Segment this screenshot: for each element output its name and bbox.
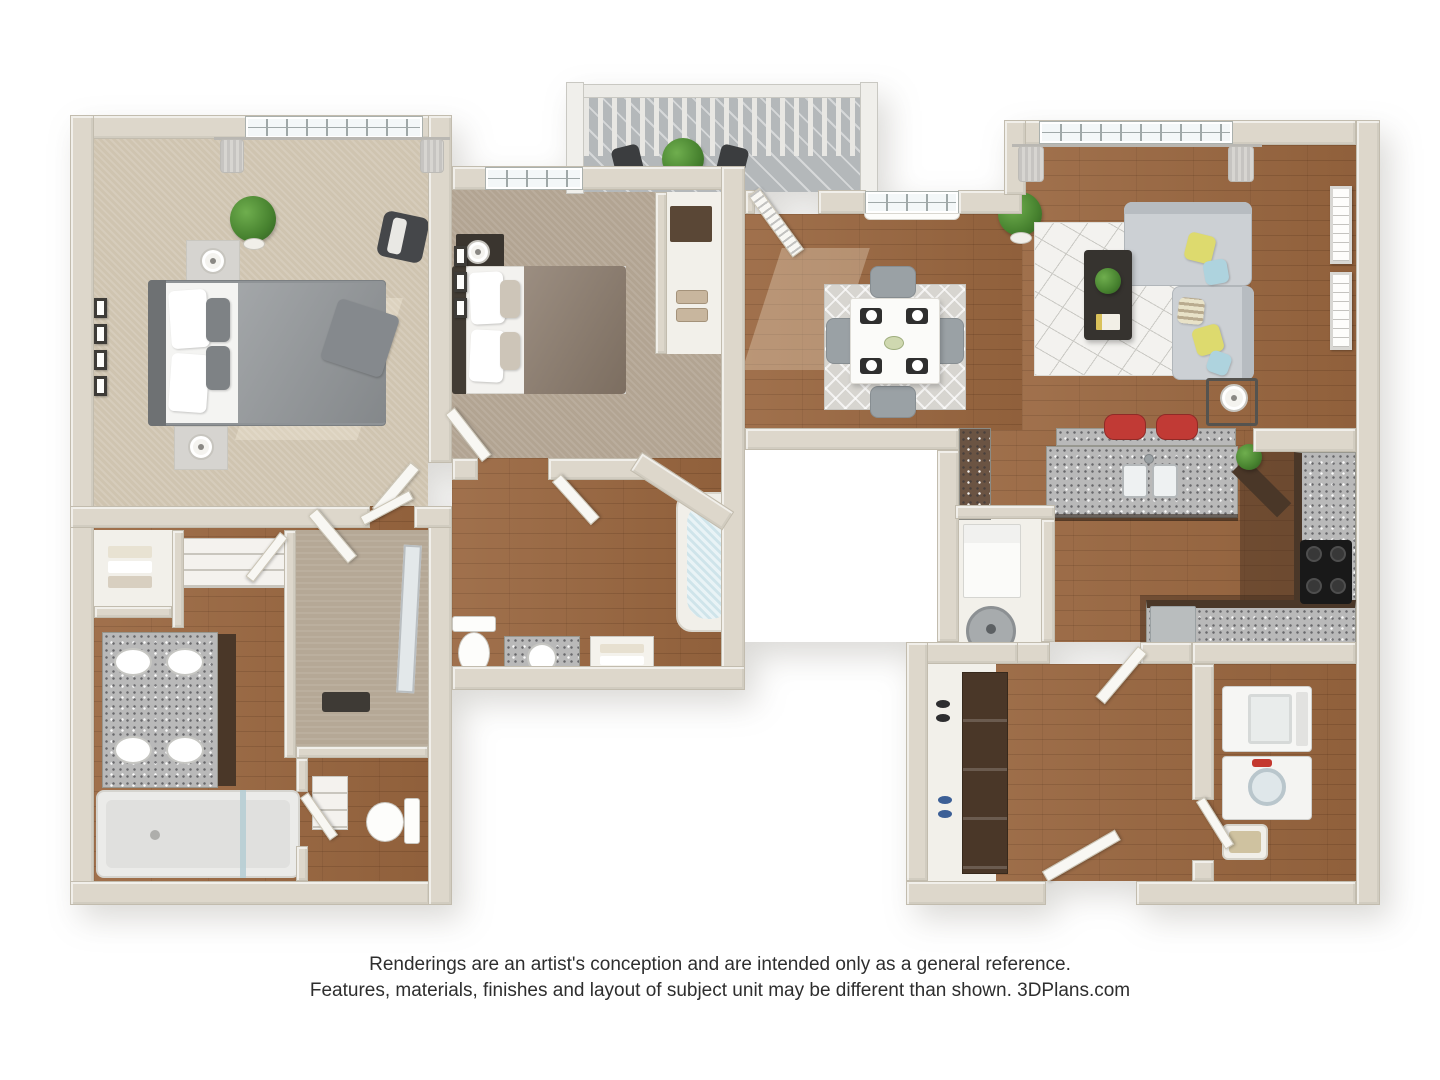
bedroom2-closet-basket-2 — [676, 308, 708, 322]
bedroom1-wall-art-2 — [94, 324, 107, 344]
dining-window — [866, 192, 958, 213]
wall-linen-niche-bottom — [94, 606, 172, 618]
balcony-railing-top-bar — [570, 84, 876, 98]
bedroom1-lamp-top — [200, 248, 226, 274]
floor-lamp — [1220, 384, 1248, 412]
bedroom1-curtain-left — [220, 139, 244, 173]
washer-lid — [1248, 694, 1292, 744]
master-toilet-bowl — [366, 802, 404, 842]
bedroom1-plant-pot — [243, 238, 265, 250]
bedroom2-accent-pillow-2 — [500, 332, 520, 370]
cooktop-burner-3 — [1306, 578, 1322, 594]
bedroom1-curtain-right — [420, 139, 444, 173]
wall-utility-right — [1041, 519, 1055, 642]
bedroom1-pillow-1 — [168, 289, 210, 350]
wall-bedroom2-bottom-left — [452, 458, 478, 480]
bedroom2-wall-art-3 — [454, 298, 467, 318]
wall-entry-bottom-left — [906, 881, 1046, 905]
hall-corner-plant-pot — [1010, 232, 1032, 244]
closet-shoes-dark-2 — [936, 714, 950, 722]
kitchen-sink-right — [1152, 464, 1178, 498]
living-wall-art-1 — [1330, 186, 1352, 264]
balcony-post-right — [860, 82, 878, 194]
bedroom1-curtain-rod — [214, 137, 450, 140]
master-vanity-sink-2 — [166, 648, 204, 676]
bedroom1-wall-art-1 — [94, 298, 107, 318]
bedroom2-accent-pillow-1 — [500, 280, 520, 318]
closet-shoes-blue-2 — [938, 810, 952, 818]
dining-chair-top — [870, 266, 916, 298]
coffee-table-book — [1096, 314, 1120, 330]
dining-centerpiece — [884, 336, 904, 350]
dryer-red-button — [1252, 759, 1272, 767]
wall-hall-top-b — [818, 190, 866, 214]
wall-notch-top — [745, 428, 959, 450]
master-shower-drain — [150, 830, 160, 840]
disclaimer-line-1: Renderings are an artist's conception an… — [0, 952, 1440, 978]
floorplan-rendering-page: Renderings are an artist's conception an… — [0, 0, 1440, 1080]
dining-plate-1 — [866, 310, 877, 321]
bedroom1-window — [246, 117, 422, 138]
wall-entry-top-right — [1140, 642, 1192, 664]
disclaimer-line-2: Features, materials, finishes and layout… — [0, 978, 1440, 1004]
dining-chair-bottom — [870, 386, 916, 418]
master-shower-tray — [106, 800, 290, 868]
sofa-pillow-striped — [1177, 297, 1206, 326]
bedroom1-plant — [230, 196, 276, 242]
bedroom1-lamp-bottom — [188, 434, 214, 460]
wall-bedroom1-bottom-stub — [414, 506, 452, 528]
refrigerator — [963, 524, 1021, 598]
master-vanity-sink-3 — [114, 736, 152, 764]
wall-right-outer — [1356, 120, 1380, 905]
living-window — [1040, 122, 1232, 143]
cooktop-burner-2 — [1330, 546, 1346, 562]
dining-plate-4 — [912, 360, 923, 371]
kitchen-sink-left — [1122, 464, 1148, 498]
dining-window-valance — [864, 213, 960, 220]
bathroom-towel-1 — [600, 644, 644, 653]
bedroom2-closet-basket-1 — [676, 290, 708, 304]
apartment-3d-floorplan — [0, 0, 1440, 1080]
master-vanity-cabinet-edge — [218, 634, 236, 786]
coffee-table-plant — [1095, 268, 1121, 294]
cooktop-burner-1 — [1306, 546, 1322, 562]
bedroom1-wall-art-3 — [94, 350, 107, 370]
wall-walkin-closet-bottom — [296, 746, 428, 758]
bedroom2-wall-art-1 — [454, 246, 467, 266]
dining-plate-2 — [912, 310, 923, 321]
sofa-chaise-back — [1124, 202, 1252, 214]
living-curtain-right — [1228, 146, 1254, 182]
wall-bedroom2-closet-left — [655, 192, 667, 354]
master-vanity-sink-4 — [166, 736, 204, 764]
wall-laundry-left-upper — [1192, 664, 1214, 800]
linen-towel-2 — [108, 561, 152, 573]
bar-stool-2 — [1156, 414, 1198, 440]
water-heater-valve — [986, 624, 996, 634]
wall-center-right — [721, 166, 745, 690]
bedroom1-accent-pillow-1 — [206, 298, 230, 342]
kitchen-bar-backsplash — [1056, 428, 1236, 446]
bedroom1-accent-pillow-2 — [206, 346, 230, 390]
cooktop-burner-4 — [1330, 578, 1346, 594]
wall-bathroom-bottom — [452, 666, 745, 690]
wall-closet-divider — [284, 530, 296, 758]
bedroom2-lamp — [466, 240, 490, 264]
bedroom2-duvet — [524, 266, 626, 394]
kitchen-faucet — [1144, 454, 1154, 464]
linen-towel-3 — [108, 576, 152, 588]
wall-leftwing-bottom — [70, 881, 430, 905]
sofa-body-back — [1242, 286, 1254, 380]
entry-closet-doors — [962, 672, 1008, 874]
wall-laundry-left-lower — [1192, 860, 1214, 881]
living-curtain-left — [1018, 146, 1044, 182]
notch-exterior-cutout — [745, 450, 937, 642]
master-shower-glass — [240, 790, 246, 878]
wall-living-kitchen-stub — [1253, 428, 1356, 452]
living-wall-art-2 — [1330, 272, 1352, 350]
wall-leftwing-right-lower — [428, 518, 452, 905]
master-vanity-sink-1 — [114, 648, 152, 676]
dining-plate-3 — [866, 360, 877, 371]
bedroom1-pillow-2 — [168, 353, 210, 414]
disclaimer-text: Renderings are an artist's conception an… — [0, 952, 1440, 1004]
wall-notch-right — [937, 450, 959, 642]
dryer-dial — [1248, 768, 1286, 806]
laundry-basket-contents — [1229, 831, 1261, 853]
bedroom2-closet-dresser — [670, 206, 712, 242]
living-curtain-rod — [1012, 144, 1262, 147]
wall-utility-top — [955, 505, 1055, 519]
bedroom1-wall-art-4 — [94, 376, 107, 396]
wall-wc-left-upper — [296, 758, 308, 792]
kitchen-dishwasher — [1150, 606, 1196, 646]
wall-linen-niche-right — [172, 530, 184, 628]
bathroom-towel-2 — [600, 656, 644, 665]
master-toilet-tank — [404, 798, 420, 844]
kitchen-island-base — [1046, 514, 1238, 521]
linen-towel-1 — [108, 546, 152, 558]
bedroom1-bed-headboard — [148, 280, 166, 426]
sofa-pillow-blue-1 — [1202, 258, 1230, 286]
closet-shoes-dark-1 — [936, 700, 950, 708]
bathroom-toilet-tank — [452, 616, 496, 632]
wall-entry-bottom-right — [1136, 881, 1356, 905]
walkin-closet-bench — [322, 692, 370, 712]
wall-entry-left-outer — [906, 642, 928, 881]
wall-laundry-top — [1192, 642, 1356, 664]
bar-stool-1 — [1104, 414, 1146, 440]
bedroom2-wall-art-2 — [454, 272, 467, 292]
washer-控panel — [1296, 692, 1308, 746]
bedroom2-window — [486, 168, 582, 189]
closet-shoes-blue-1 — [938, 796, 952, 804]
wall-wc-left-lower — [296, 846, 308, 881]
